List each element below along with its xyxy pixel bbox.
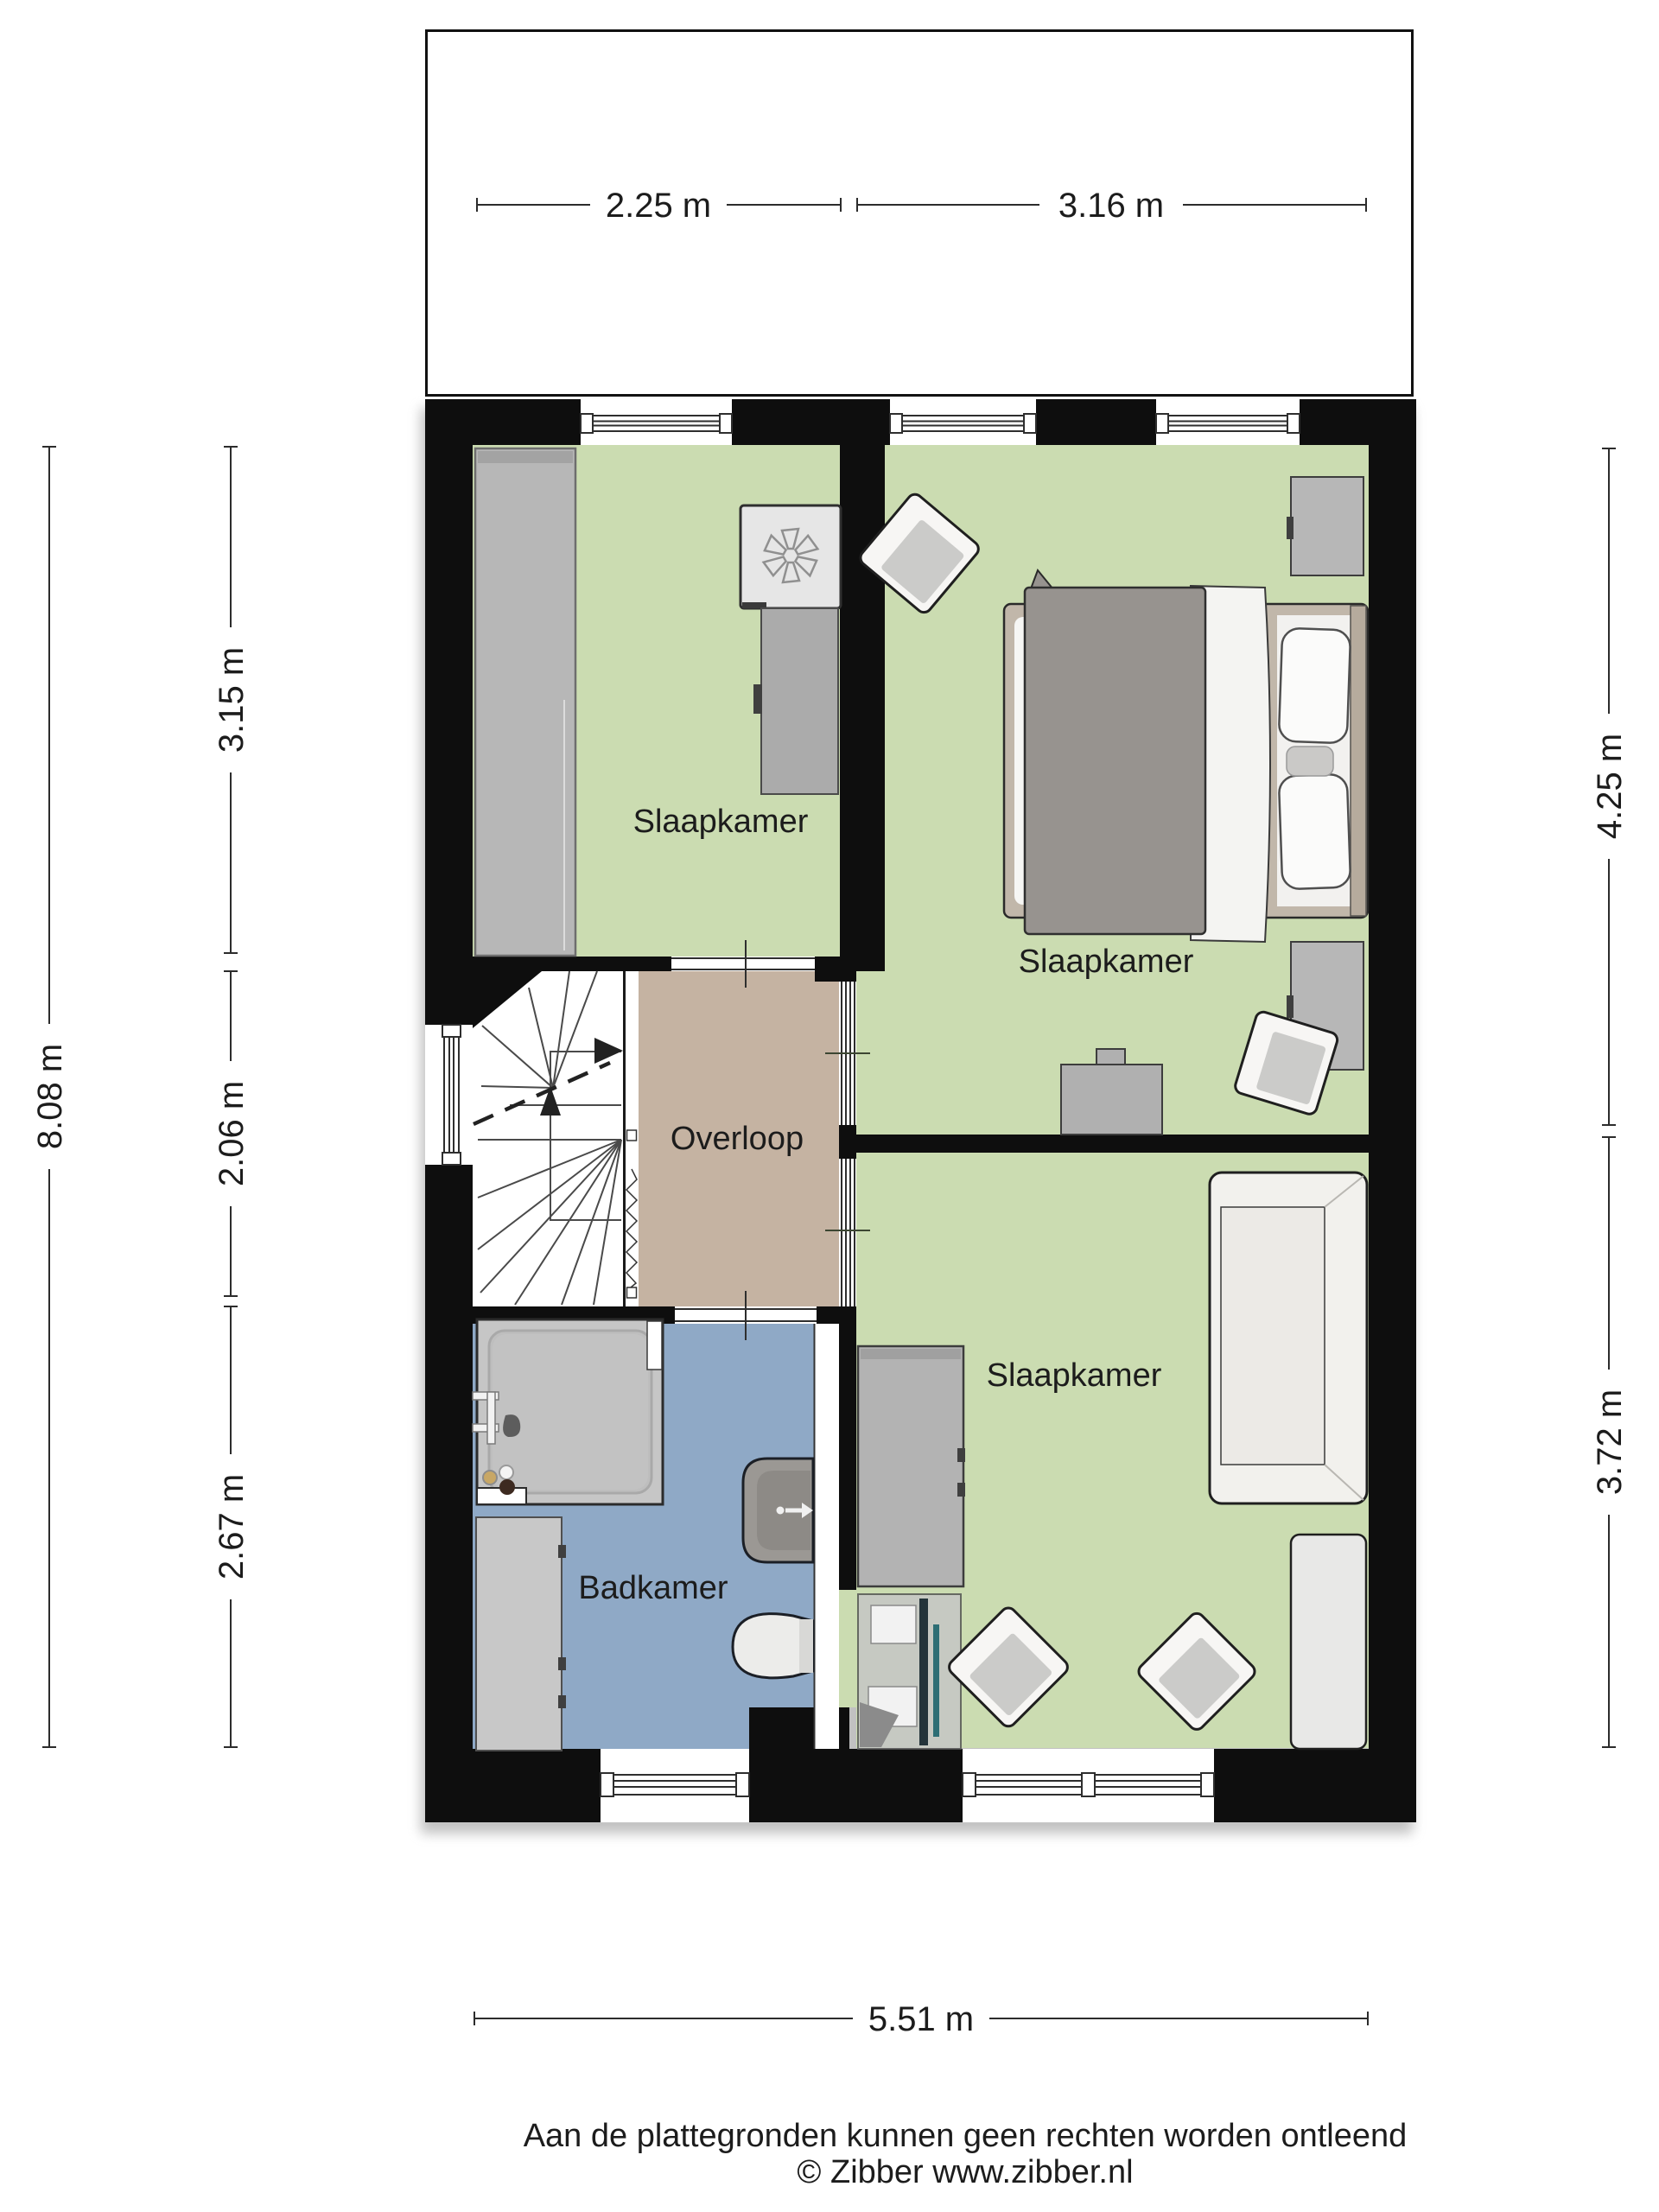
svg-text:3.72 m: 3.72 m [1591, 1389, 1629, 1495]
svg-text:4.25 m: 4.25 m [1591, 734, 1629, 839]
svg-text:2.06 m: 2.06 m [213, 1081, 251, 1186]
svg-text:2.25 m: 2.25 m [606, 187, 711, 225]
svg-text:Overloop: Overloop [671, 1121, 804, 1157]
svg-text:Slaapkamer: Slaapkamer [633, 804, 809, 840]
svg-text:8.08 m: 8.08 m [31, 1044, 69, 1149]
svg-text:3.16 m: 3.16 m [1058, 187, 1164, 225]
svg-text:3.15 m: 3.15 m [213, 647, 251, 753]
svg-text:Aan de plattegronden kunnen ge: Aan de plattegronden kunnen geen rechten… [524, 2118, 1408, 2154]
svg-text:5.51 m: 5.51 m [868, 2000, 974, 2038]
svg-text:© Zibber www.zibber.nl: © Zibber www.zibber.nl [797, 2154, 1133, 2190]
svg-text:Badkamer: Badkamer [578, 1570, 728, 1606]
svg-text:Slaapkamer: Slaapkamer [987, 1357, 1162, 1394]
svg-text:Slaapkamer: Slaapkamer [1019, 944, 1194, 980]
svg-text:2.67 m: 2.67 m [213, 1474, 251, 1580]
